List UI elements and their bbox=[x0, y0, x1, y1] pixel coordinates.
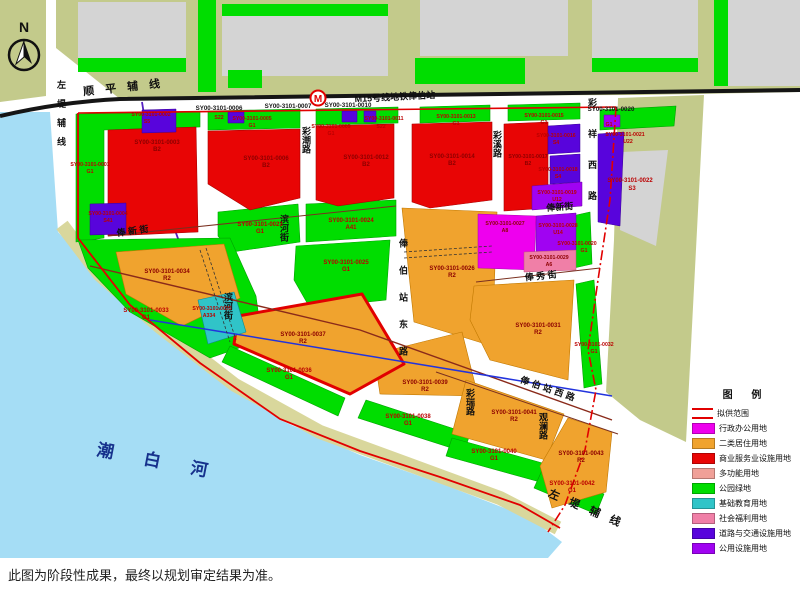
legend-swatch-multifunction bbox=[692, 468, 715, 479]
parcel-label: R2 bbox=[448, 273, 456, 279]
parcel-label: S22 bbox=[376, 124, 385, 130]
parcel-label: S3 bbox=[628, 186, 636, 192]
legend-swatch-transport bbox=[692, 528, 715, 539]
parcel-label: SY00-3101-0013 bbox=[436, 114, 475, 120]
parcel-label: B2 bbox=[525, 161, 532, 167]
top-label-0006: SY00-3101-0006 bbox=[196, 105, 243, 112]
parcel-label: R2 bbox=[534, 330, 542, 336]
legend-swatch-welfare bbox=[692, 513, 715, 524]
parcel-label: SY00-3101-0041 bbox=[491, 410, 537, 416]
legend-swatch-education bbox=[692, 498, 715, 509]
map-caption: 此图为阶段性成果，最终以规划审定结果为准。 bbox=[8, 565, 281, 584]
legend-item: 拟供范围 bbox=[692, 406, 800, 421]
parcel-label: SY00-3101-0023 bbox=[237, 222, 283, 228]
road-label-caixi: 彩溪路 bbox=[492, 129, 503, 158]
parcel-label: SY00-3101-0021 bbox=[605, 132, 644, 138]
road-label-caixiang-west: 彩祥西路 bbox=[587, 97, 598, 222]
parcel-label: SY00-3101-0018 bbox=[538, 167, 577, 173]
parcel-label: SY00-3101-0006 bbox=[243, 156, 289, 162]
parcel-label: A41 bbox=[345, 225, 357, 231]
parcel-label: S5 bbox=[144, 119, 150, 125]
parcel-label: G1 bbox=[490, 456, 499, 462]
parcel-label: G1 bbox=[453, 121, 460, 127]
legend-label: 道路与交通设施用地 bbox=[719, 528, 791, 539]
parcel-label: SY00-3101-0026 bbox=[429, 266, 475, 272]
parcel-label: SY00-3101-0015 bbox=[524, 113, 563, 119]
legend-swatch-park bbox=[692, 483, 715, 494]
parcel-label: SY00-3101-0034 bbox=[144, 269, 190, 275]
parcel-label: G1 bbox=[404, 421, 413, 427]
legend-title: 图 例 bbox=[692, 386, 800, 401]
parcel-label: SY00-3101-0042 bbox=[549, 481, 595, 487]
road-label-zuodi-left: 左堤辅线 bbox=[56, 79, 67, 156]
road-label-cairui: 彩瑞路 bbox=[465, 387, 476, 416]
parcel-label: SY00-3101-0017 bbox=[508, 154, 547, 160]
parcel-label: SY00-3101-0035 bbox=[192, 306, 231, 312]
parcel-label: G1 bbox=[581, 248, 588, 254]
parcel-label: SY00-3101-0037 bbox=[280, 332, 326, 338]
parcel-label: SY00-3101-0043 bbox=[558, 451, 604, 457]
compass-n-label: N bbox=[19, 19, 29, 35]
parcel-label: SY00-3101-0014 bbox=[429, 154, 475, 160]
parcel-label: G1 bbox=[285, 375, 294, 381]
parcel-label: G1 bbox=[591, 349, 598, 355]
parcel-label: B2 bbox=[448, 161, 456, 167]
parcel-label: R2 bbox=[510, 417, 518, 423]
parcel-label: G1 bbox=[142, 315, 151, 321]
parcel-label: G1 bbox=[328, 131, 335, 137]
top-label-0010: SY00-3101-0010 bbox=[325, 102, 372, 109]
legend-label: 公用设施用地 bbox=[719, 543, 767, 554]
top-label-0020: SY00-3101-0020 bbox=[588, 106, 635, 113]
parcel-label: SY00-3101-0012 bbox=[343, 155, 389, 161]
top-label-0007: SY00-3101-0007 bbox=[265, 103, 312, 110]
legend-swatch-commercial bbox=[692, 453, 715, 464]
legend-item: 二类居住用地 bbox=[692, 436, 800, 451]
parcel-label: SY00-3101-0005 bbox=[232, 116, 271, 122]
parcel-label: SY00-3101-0004 bbox=[88, 211, 127, 217]
legend-label: 多功能用地 bbox=[719, 468, 759, 479]
map-canvas: N M 顺 平 辅 线 M15号线地铁俸伯站 左堤辅线 左 堤 辅 线 彩潮路 … bbox=[0, 0, 800, 589]
parcel-label: G1 bbox=[342, 267, 351, 273]
parcel-label: B2 bbox=[153, 147, 161, 153]
road-label-fengbo-east: 俸伯站东路 bbox=[398, 237, 409, 373]
parcel-label: G1 bbox=[249, 123, 256, 129]
parcel-label: SY00-3101-0025 bbox=[323, 260, 369, 266]
parcel-label: G1 bbox=[568, 488, 577, 494]
parcel-label-s22: S22 bbox=[214, 115, 223, 121]
legend-label: 行政办公用地 bbox=[719, 423, 767, 434]
parcel-label: SY00-3101-0019 bbox=[537, 190, 576, 196]
parcel-label: G1 bbox=[256, 229, 265, 235]
parcel-label: SY00-3101-0029 bbox=[529, 255, 568, 261]
legend-swatch-residential bbox=[692, 438, 715, 449]
parcel-label: U14 bbox=[553, 230, 563, 236]
road-label-caichao: 彩潮路 bbox=[301, 125, 312, 154]
parcel-label: U22 bbox=[623, 139, 633, 145]
parcel-0029 bbox=[524, 250, 576, 272]
parcel-label: U12 bbox=[552, 197, 562, 203]
legend-label: 基础教育用地 bbox=[719, 498, 767, 509]
legend-label: 二类居住用地 bbox=[719, 438, 767, 449]
legend-label: 商业服务业设施用地 bbox=[719, 453, 791, 464]
parcel-label: SY00-3101-0027 bbox=[485, 221, 524, 227]
legend-label: 公园绿地 bbox=[719, 483, 751, 494]
legend-item: 道路与交通设施用地 bbox=[692, 526, 800, 541]
parcel-label: SY00-3101-0031 bbox=[515, 323, 561, 329]
parcel-label: B2 bbox=[362, 162, 370, 168]
legend-item: 公用设施用地 bbox=[692, 541, 800, 556]
parcel-label: SY00-3101-0001 bbox=[70, 162, 109, 168]
legend-item: 多功能用地 bbox=[692, 466, 800, 481]
parcel-label: G1 bbox=[541, 120, 548, 126]
parcel-label: SY00-3101-0002 bbox=[131, 112, 170, 118]
legend-item: 基础教育用地 bbox=[692, 496, 800, 511]
planning-map: N M 顺 平 辅 线 M15号线地铁俸伯站 左堤辅线 左 堤 辅 线 彩潮路 … bbox=[0, 0, 800, 589]
legend-item: 行政办公用地 bbox=[692, 421, 800, 436]
parcel-label: S41 bbox=[103, 218, 112, 224]
parcel-label: SY00-3101-0032 bbox=[574, 342, 613, 348]
parcel-label: SY00-3101-0022 bbox=[607, 178, 653, 184]
parcel-label: G1 bbox=[87, 169, 94, 175]
legend: 图 例 拟供范围 行政办公用地 二类居住用地 商业服务业设施用地 多功能用地 公… bbox=[692, 386, 800, 556]
legend-item: 商业服务业设施用地 bbox=[692, 451, 800, 466]
parcel-label: SY00-3101-0040 bbox=[471, 449, 517, 455]
parcel-label: R2 bbox=[163, 276, 171, 282]
parcel-label: SY00-3101-0024 bbox=[328, 218, 374, 224]
parcel-label: S4 bbox=[555, 174, 561, 180]
parcel-label: R2 bbox=[577, 458, 585, 464]
legend-swatch-admin bbox=[692, 423, 715, 434]
parcel-label: R2 bbox=[421, 387, 429, 393]
parcel-label: SY00-3101-0039 bbox=[402, 380, 448, 386]
parcel-label: A6 bbox=[546, 262, 553, 268]
parcel-label: A334 bbox=[203, 313, 216, 319]
parcel-0011-square-b bbox=[342, 111, 357, 122]
parcel-label: SY00-3101-0028 bbox=[538, 223, 577, 229]
parcel-0016 bbox=[548, 124, 580, 154]
parcel-label: SY00-3101-0033 bbox=[123, 308, 169, 314]
parcel-label: SY00-3101-0003 bbox=[134, 140, 180, 146]
parcel-label: SY00-3101-0036 bbox=[266, 368, 312, 374]
parcel-label: S4 bbox=[553, 140, 559, 146]
parcel-label: R2 bbox=[299, 339, 307, 345]
parcel-label: SY00-3101-0009 bbox=[311, 124, 350, 130]
parcel-label: SY00-3101-0020 bbox=[557, 241, 596, 247]
parcel-0031 bbox=[470, 280, 574, 380]
parcel-label-0020-type: G1 bbox=[606, 122, 613, 128]
parcel-0006 bbox=[208, 129, 300, 210]
parcel-label: SY00-3101-0038 bbox=[385, 414, 431, 420]
legend-item: 社会福利用地 bbox=[692, 511, 800, 526]
metro-logo: M bbox=[314, 94, 322, 105]
legend-label: 社会福利用地 bbox=[719, 513, 767, 524]
parcel-label: A8 bbox=[502, 228, 509, 234]
parcel-0032 bbox=[576, 280, 602, 388]
legend-swatch-utility bbox=[692, 543, 715, 554]
legend-item: 公园绿地 bbox=[692, 481, 800, 496]
metro-station-badge: M bbox=[311, 91, 326, 106]
parcel-label: SY00-3101-0011 bbox=[365, 116, 404, 122]
road-label-guanlan: 观澜路 bbox=[538, 412, 549, 440]
parcel-label: SY00-3101-0016 bbox=[536, 133, 575, 139]
legend-label: 拟供范围 bbox=[717, 408, 749, 419]
parcel-label: B2 bbox=[262, 163, 270, 169]
legend-swatch-boundary bbox=[692, 408, 713, 419]
